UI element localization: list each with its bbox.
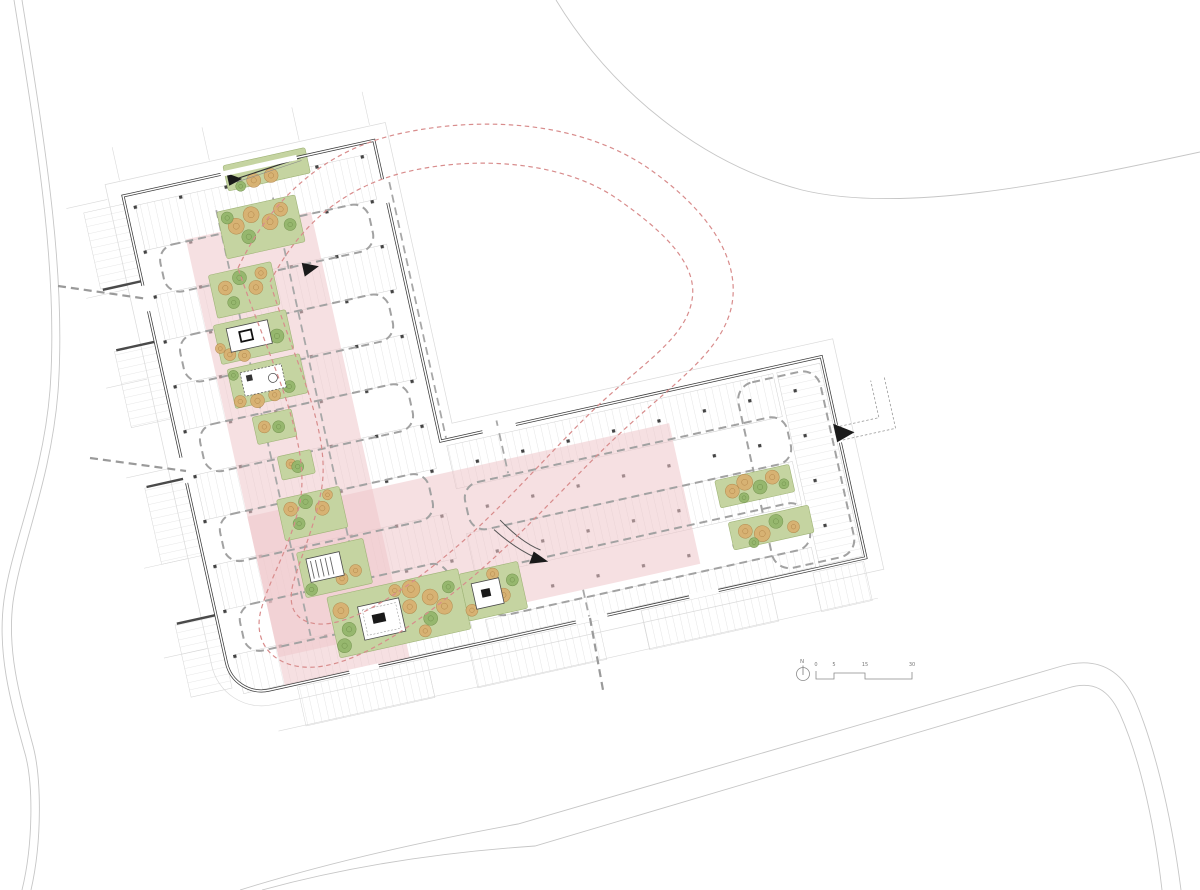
scale-label-0: 0 (814, 662, 817, 668)
street-west-outer (2, 0, 52, 890)
north-arrow: N (797, 659, 810, 681)
site-tick (292, 107, 299, 140)
site-tick (202, 127, 209, 160)
north-label: N (800, 659, 804, 665)
scale-bar-line (816, 671, 912, 679)
site-plan-page: N 0 5 15 30 (0, 0, 1200, 890)
scale-label-5: 5 (832, 662, 835, 668)
contour-northeast (556, 0, 1200, 199)
legend: N 0 5 15 30 (797, 659, 916, 681)
street-west-inner (11, 0, 60, 890)
site-tick (66, 199, 107, 208)
street-southeast-inner (262, 685, 1162, 890)
site-tick (126, 469, 167, 478)
site-tick (86, 289, 127, 298)
site-tick (112, 147, 119, 180)
exit-corridor (832, 381, 879, 427)
plan-layers (2, 0, 1200, 890)
site-plan-canvas: N 0 5 15 30 (0, 0, 1200, 890)
stair-core-2-cab (246, 374, 253, 381)
scale-label-30: 30 (909, 662, 915, 668)
scale-bar: 0 5 15 30 (814, 662, 915, 679)
access-road-south (90, 458, 186, 471)
scale-label-15: 15 (862, 662, 868, 668)
site-tick (362, 92, 369, 125)
